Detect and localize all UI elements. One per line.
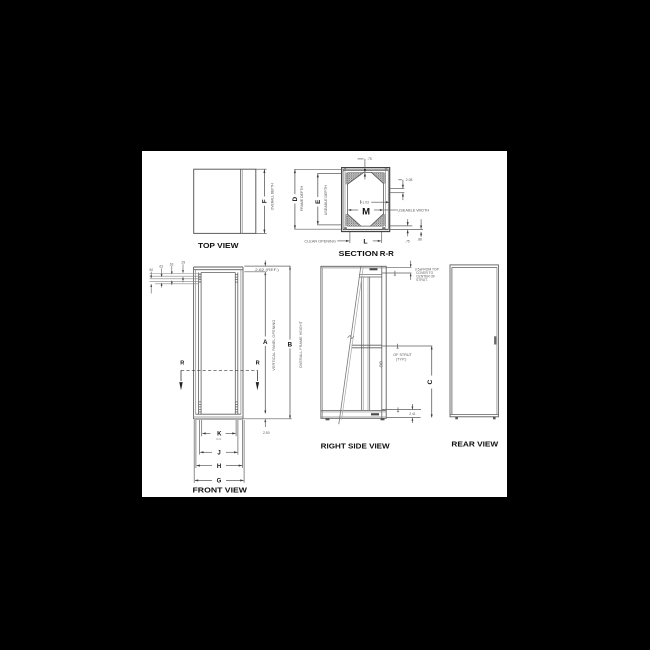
svg-text:C: C: [427, 379, 434, 384]
svg-text:CLEAR OPENING: CLEAR OPENING: [304, 240, 336, 244]
svg-text:TOP VIEW: TOP VIEW: [198, 243, 239, 250]
svg-text:RIGHT SIDE VIEW: RIGHT SIDE VIEW: [321, 444, 390, 451]
svg-text:R: R: [180, 361, 184, 367]
svg-text:SECTION: SECTION: [339, 251, 379, 258]
svg-text:F: F: [261, 199, 268, 203]
svg-text:E: E: [315, 200, 322, 204]
svg-text:.63: .63: [169, 262, 174, 266]
svg-text:.50: .50: [149, 268, 154, 272]
svg-text:REAR VIEW: REAR VIEW: [451, 441, 498, 448]
svg-text:.28: .28: [181, 261, 186, 265]
svg-text:(TYP.): (TYP.): [396, 357, 406, 361]
svg-text:J: J: [217, 451, 220, 457]
svg-text:OVERALL FRAME HEIGHT: OVERALL FRAME HEIGHT: [299, 321, 303, 368]
svg-text:2.62 (REF.): 2.62 (REF.): [255, 268, 279, 272]
svg-text:R-R: R-R: [380, 251, 394, 258]
svg-text:G: G: [217, 479, 222, 485]
svg-text:.75: .75: [405, 239, 410, 243]
svg-text:L: L: [363, 239, 367, 246]
svg-text:D: D: [292, 196, 299, 201]
svg-text:M: M: [362, 206, 370, 217]
svg-text:B: B: [288, 342, 293, 349]
svg-text:OVERALL DEPTH: OVERALL DEPTH: [270, 183, 274, 211]
svg-text:.63: .63: [159, 265, 164, 269]
svg-text:2.50: 2.50: [263, 431, 270, 435]
svg-text:USEABLE WIDTH: USEABLE WIDTH: [397, 208, 429, 212]
svg-text:H: H: [217, 464, 221, 470]
svg-text:STRUT.: STRUT.: [416, 278, 428, 282]
svg-text:R: R: [256, 361, 260, 367]
svg-text:A: A: [263, 339, 268, 346]
svg-text:FRAME DEPTH: FRAME DEPTH: [300, 185, 304, 211]
svg-text:.75: .75: [367, 157, 372, 161]
svg-text:2.41: 2.41: [409, 412, 416, 416]
svg-text:C-C: C-C: [216, 437, 221, 441]
svg-text:FRONT VIEW: FRONT VIEW: [193, 488, 248, 495]
svg-text:2.08: 2.08: [406, 178, 413, 182]
svg-text:.88: .88: [417, 237, 422, 241]
svg-text:1.03: 1.03: [362, 200, 369, 204]
svg-text:VERTICAL PANEL OPENING: VERTICAL PANEL OPENING: [272, 319, 276, 371]
svg-text:USEABLE DEPTH: USEABLE DEPTH: [324, 185, 328, 216]
